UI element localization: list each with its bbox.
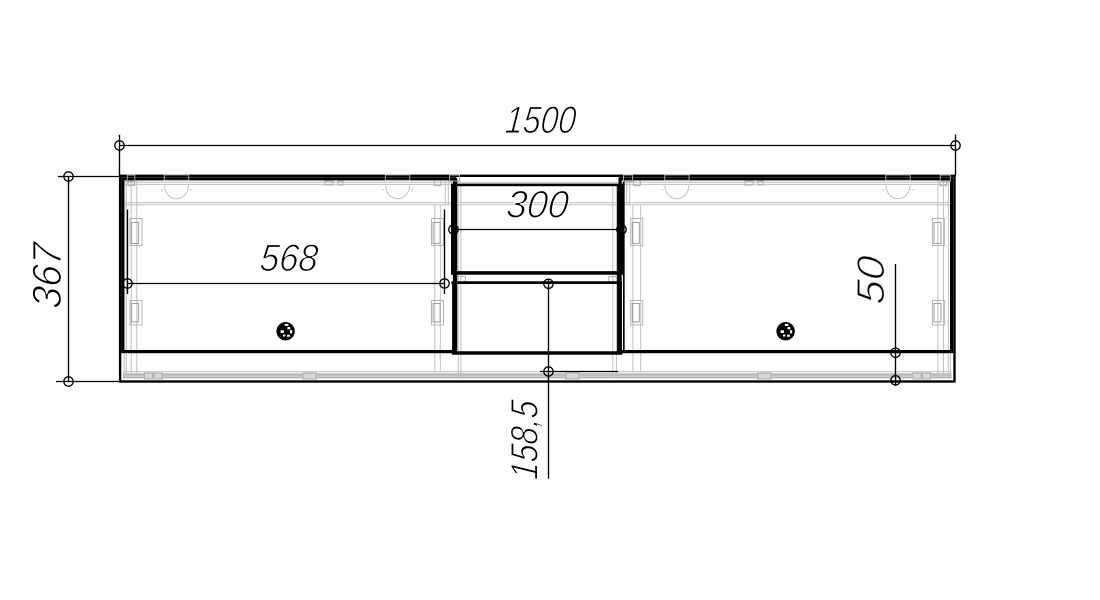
svg-text:568: 568 — [258, 237, 320, 280]
svg-text:367: 367 — [24, 239, 70, 310]
svg-text:300: 300 — [505, 184, 571, 227]
svg-text:50: 50 — [850, 253, 893, 305]
svg-text:158,5: 158,5 — [504, 398, 547, 481]
svg-text:1500: 1500 — [504, 99, 579, 142]
